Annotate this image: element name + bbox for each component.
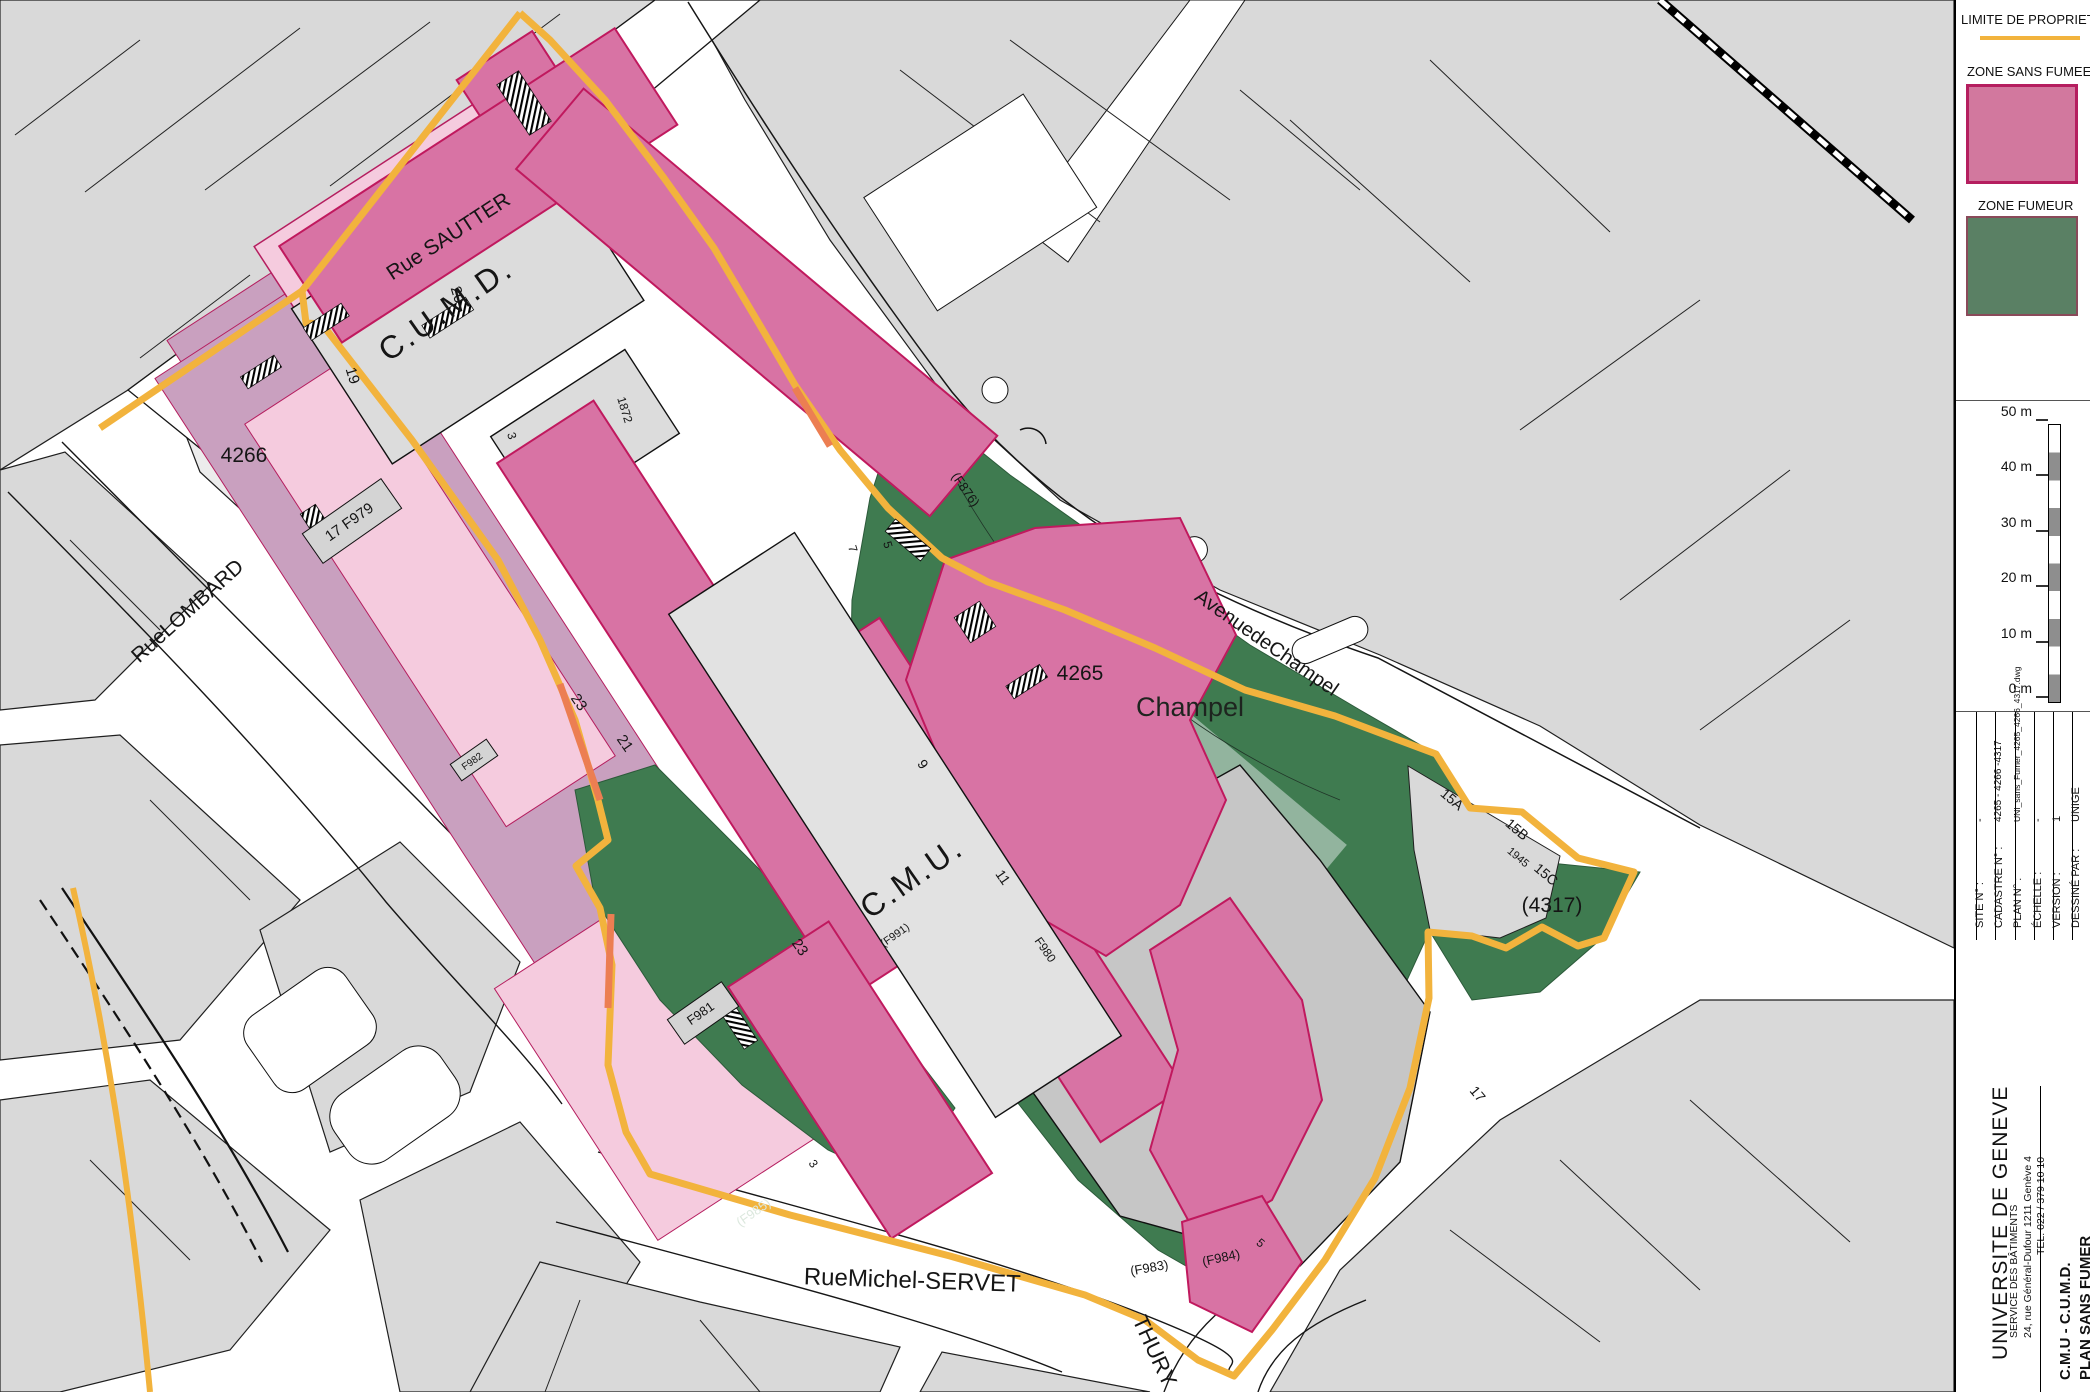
project-title: C.M.U - C.U.M.D. bbox=[2057, 1263, 2074, 1381]
map-label-parcel-4265: 4265 bbox=[1057, 662, 1104, 685]
org-divider bbox=[2040, 1086, 2041, 1392]
legend-zone-sans-fumee-label: ZONE SANS FUMEE bbox=[1967, 64, 2090, 79]
org-address: 24, rue Général-Dufour 1211 Genève 4 bbox=[2022, 1156, 2034, 1338]
scale-label: 40 m bbox=[1960, 458, 2032, 474]
org-service: SERVICE DES BÂTIMENTS bbox=[2008, 1205, 2020, 1338]
scale-tick bbox=[2036, 530, 2048, 532]
scale-label: 20 m bbox=[1960, 569, 2032, 585]
scale-label: 50 m bbox=[1960, 403, 2032, 419]
legend-limite-label: LIMITE DE PROPRIET bbox=[1961, 12, 2090, 27]
map-label-parcel-4266: 4266 bbox=[221, 444, 268, 467]
zone-sans-fumee-swatch bbox=[1966, 84, 2078, 184]
panel-divider-1 bbox=[1956, 400, 2090, 401]
info-panel: LIMITE DE PROPRIET ZONE SANS FUMEE ZONE … bbox=[1954, 0, 2090, 1392]
scale-tick bbox=[2036, 696, 2048, 698]
map-label-parcel-4317: (4317) bbox=[1522, 894, 1583, 917]
site-plan-page: Rue SAUTTERRueLOMBARDAvenuedeChampelRueM… bbox=[0, 0, 2090, 1392]
zone-fumeur-swatch bbox=[1966, 216, 2078, 316]
scale-label: 30 m bbox=[1960, 514, 2032, 530]
legend-zone-fumeur-label: ZONE FUMEUR bbox=[1978, 198, 2073, 213]
scale-tick bbox=[2036, 474, 2048, 476]
boundary-line-sample bbox=[1980, 36, 2080, 40]
scale-label: 10 m bbox=[1960, 625, 2032, 641]
scale-tick bbox=[2036, 641, 2048, 643]
map-canvas: Rue SAUTTERRueLOMBARDAvenuedeChampelRueM… bbox=[0, 0, 1954, 1392]
scale-bar-graphic bbox=[2048, 424, 2061, 703]
titleblock-field bbox=[2073, 712, 2090, 940]
org-tel: TEL. 022 / 379 10 10 bbox=[2035, 1157, 2047, 1255]
map-label-champel: Champel bbox=[1136, 692, 1244, 722]
plan-title: PLAN SANS FUMER bbox=[2077, 1236, 2090, 1380]
scale-tick bbox=[2036, 419, 2048, 421]
scale-tick bbox=[2036, 585, 2048, 587]
